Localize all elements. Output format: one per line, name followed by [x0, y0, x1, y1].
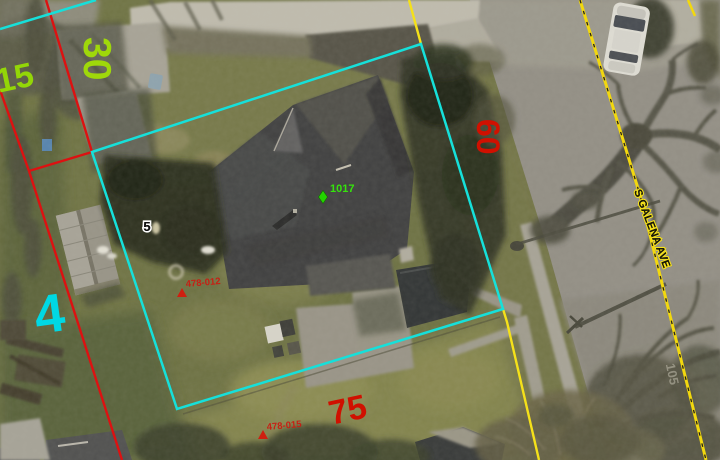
- svg-text:60: 60: [470, 119, 506, 155]
- svg-text:1017: 1017: [330, 183, 354, 195]
- svg-text:30: 30: [75, 37, 118, 80]
- svg-text:5: 5: [143, 219, 150, 234]
- svg-text:75: 75: [325, 388, 370, 433]
